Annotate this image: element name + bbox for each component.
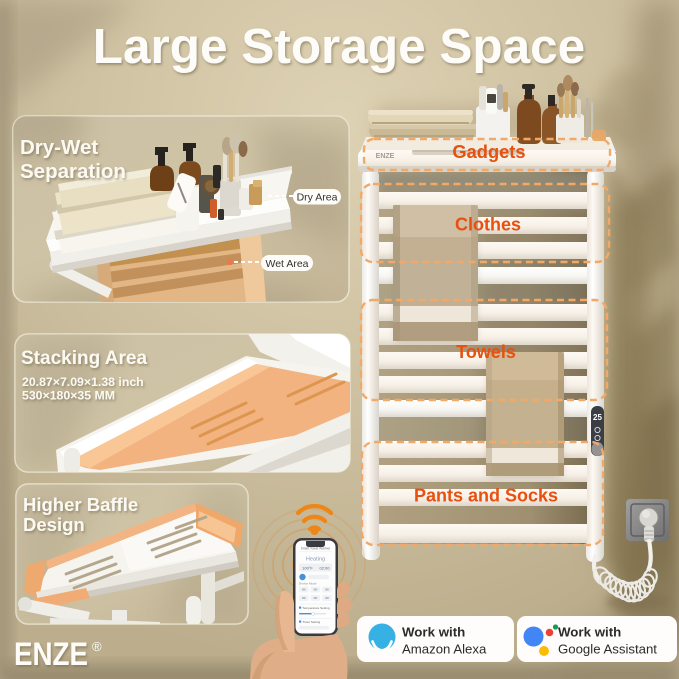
svg-text:Gadgets: Gadgets — [452, 141, 525, 162]
svg-text:Work with: Work with — [558, 625, 621, 640]
svg-text:Work with: Work with — [402, 625, 465, 640]
svg-text:20.87×7.09×1.38 inch: 20.87×7.09×1.38 inch — [22, 375, 144, 389]
svg-text:Device Mode: Device Mode — [299, 582, 317, 586]
svg-text:Google Assistant: Google Assistant — [558, 642, 657, 657]
svg-text:Smart Towel Warmer: Smart Towel Warmer — [301, 547, 332, 551]
svg-text:Wet Area: Wet Area — [266, 258, 309, 270]
svg-text:Design: Design — [23, 514, 85, 535]
svg-text:®: ® — [92, 639, 102, 654]
svg-text:Dry-Wet: Dry-Wet — [20, 136, 98, 159]
svg-text:Dry Area: Dry Area — [297, 192, 338, 204]
svg-text:Clothes: Clothes — [455, 215, 521, 235]
svg-text:Stacking Area: Stacking Area — [21, 348, 147, 369]
svg-text:100°F: 100°F — [302, 566, 313, 571]
svg-text:Amazon Alexa: Amazon Alexa — [402, 642, 487, 657]
svg-text:Separation: Separation — [20, 160, 126, 183]
svg-text:Pants and Socks: Pants and Socks — [414, 486, 558, 506]
svg-text:02:00: 02:00 — [319, 566, 330, 571]
svg-text:Temperature Setting: Temperature Setting — [303, 606, 330, 610]
svg-text:ENZE: ENZE — [14, 636, 88, 672]
svg-text:Timer Setting: Timer Setting — [303, 620, 321, 624]
svg-text:25: 25 — [593, 413, 602, 422]
svg-text:530×180×35 MM: 530×180×35 MM — [22, 389, 115, 403]
svg-text:Heating: Heating — [306, 557, 325, 563]
svg-text:Towels: Towels — [456, 342, 516, 362]
svg-text:Higher Baffle: Higher Baffle — [23, 494, 138, 515]
svg-text:Large Storage Space: Large Storage Space — [93, 19, 585, 74]
